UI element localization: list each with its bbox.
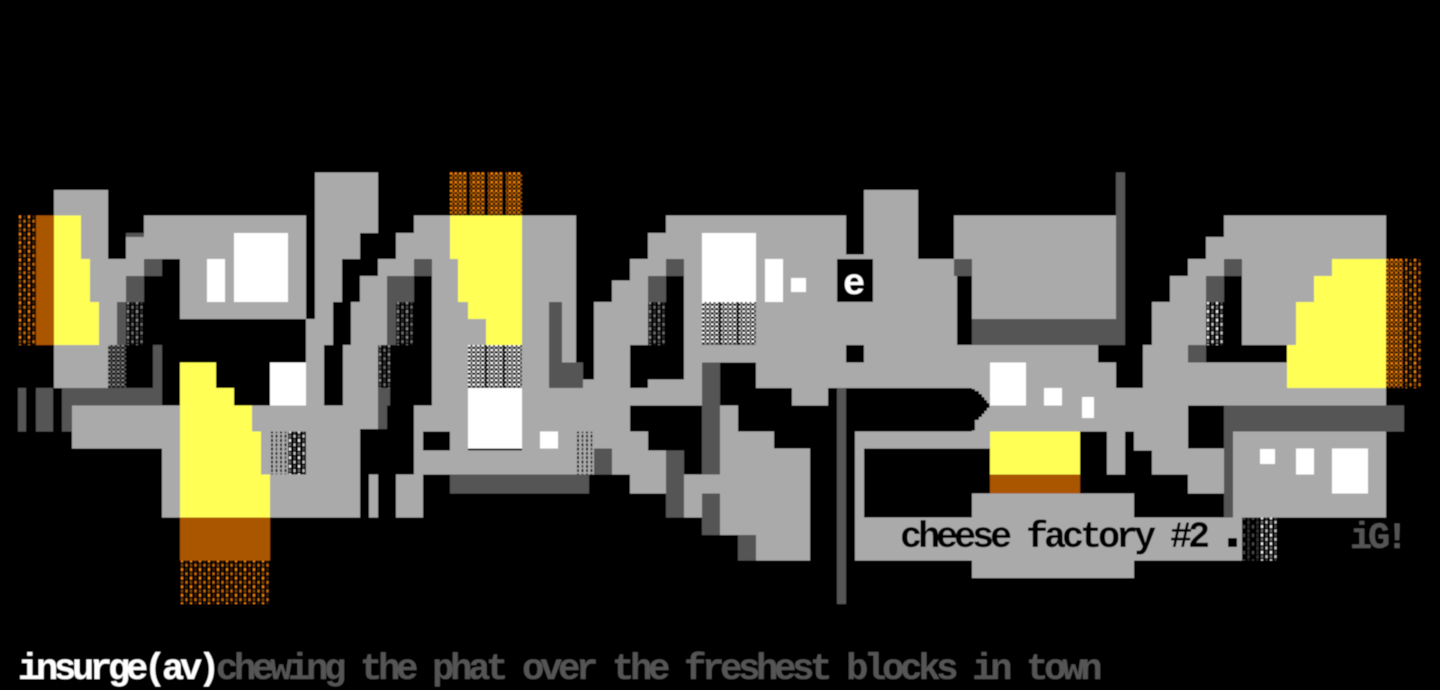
svg-text:insurge(av)chewing the phat ov: insurge(av)chewing the phat over the fre…: [18, 649, 1100, 690]
svg-text:e: e: [843, 264, 864, 306]
svg-text:cheese factory #2: cheese factory #2: [900, 517, 1209, 559]
svg-text:iG!: iG!: [1350, 518, 1404, 560]
